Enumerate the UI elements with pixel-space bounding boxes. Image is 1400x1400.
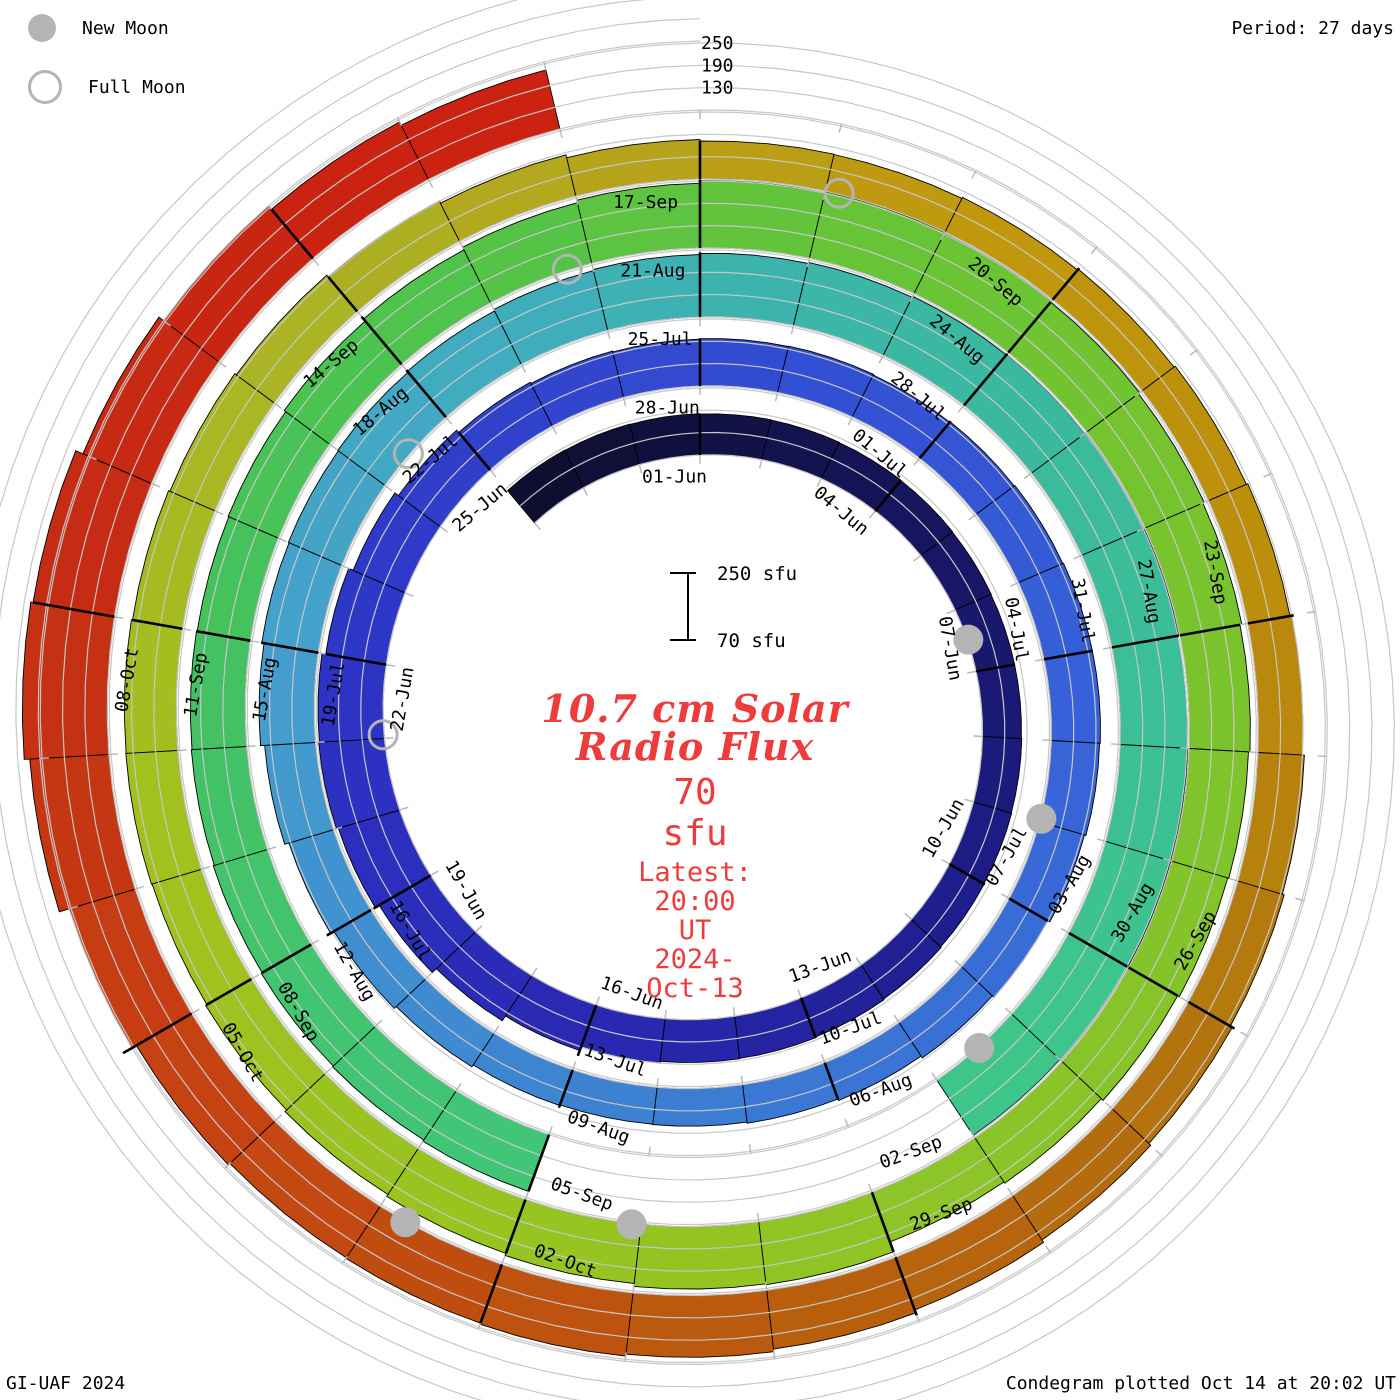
svg-text:70 sfu: 70 sfu — [717, 630, 786, 652]
svg-text:190: 190 — [701, 55, 734, 76]
latest-observation-label: Latest: 20:00 UT 2024-Oct-13 — [638, 858, 752, 1003]
period-label: Period: 27 days — [1231, 18, 1394, 39]
legend-new-moon: New Moon — [28, 14, 169, 42]
new-moon-icon — [28, 14, 56, 42]
svg-text:250 sfu: 250 sfu — [717, 563, 797, 585]
plotted-timestamp-label: Condegram plotted Oct 14 at 20:02 UT — [1006, 1373, 1396, 1394]
chart-title: 10.7 cm Solar Radio Flux — [395, 690, 995, 766]
svg-text:17-Sep: 17-Sep — [613, 192, 678, 213]
svg-text:28-Jun: 28-Jun — [635, 398, 700, 419]
credit-label: GI-UAF 2024 — [6, 1373, 125, 1394]
svg-text:01-Jun: 01-Jun — [642, 466, 707, 487]
legend-full-moon: Full Moon — [28, 70, 186, 104]
svg-text:250: 250 — [701, 33, 734, 54]
condegram-page: { "legend": { "new_moon": "New Moon", "f… — [0, 0, 1400, 1400]
full-moon-label: Full Moon — [88, 77, 186, 98]
full-moon-icon — [28, 70, 62, 104]
svg-text:21-Aug: 21-Aug — [620, 261, 685, 282]
current-flux-value: 70 sfu — [662, 772, 727, 854]
svg-text:25-Jul: 25-Jul — [628, 329, 693, 350]
new-moon-label: New Moon — [82, 18, 169, 39]
svg-text:130: 130 — [701, 78, 734, 99]
